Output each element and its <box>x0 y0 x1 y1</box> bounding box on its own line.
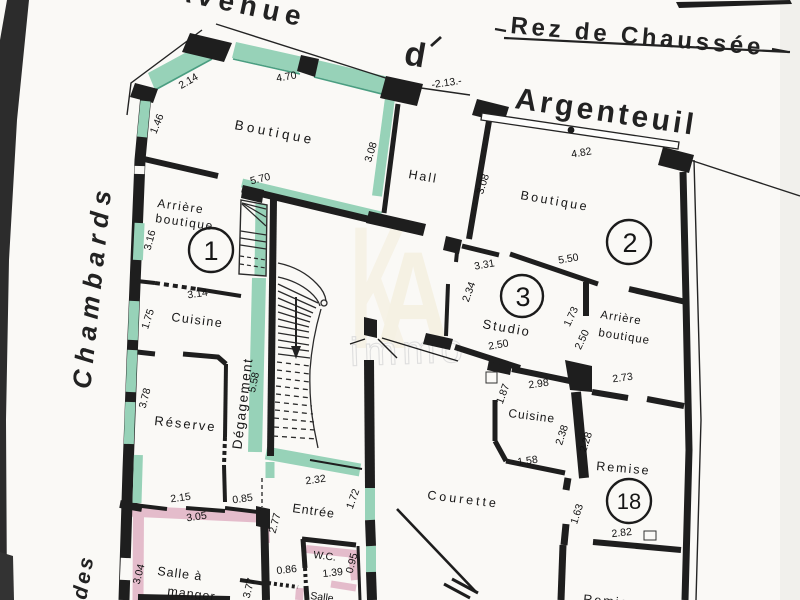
svg-text:3: 3 <box>515 282 530 312</box>
svg-text:2: 2 <box>622 228 637 258</box>
svg-text:0.86: 0.86 <box>276 563 298 577</box>
svg-text:Salle: Salle <box>310 590 335 600</box>
svg-text:18: 18 <box>617 489 641 514</box>
svg-text:2.82: 2.82 <box>611 526 633 540</box>
svg-text:1: 1 <box>203 236 218 266</box>
svg-text:1.39: 1.39 <box>322 566 344 580</box>
